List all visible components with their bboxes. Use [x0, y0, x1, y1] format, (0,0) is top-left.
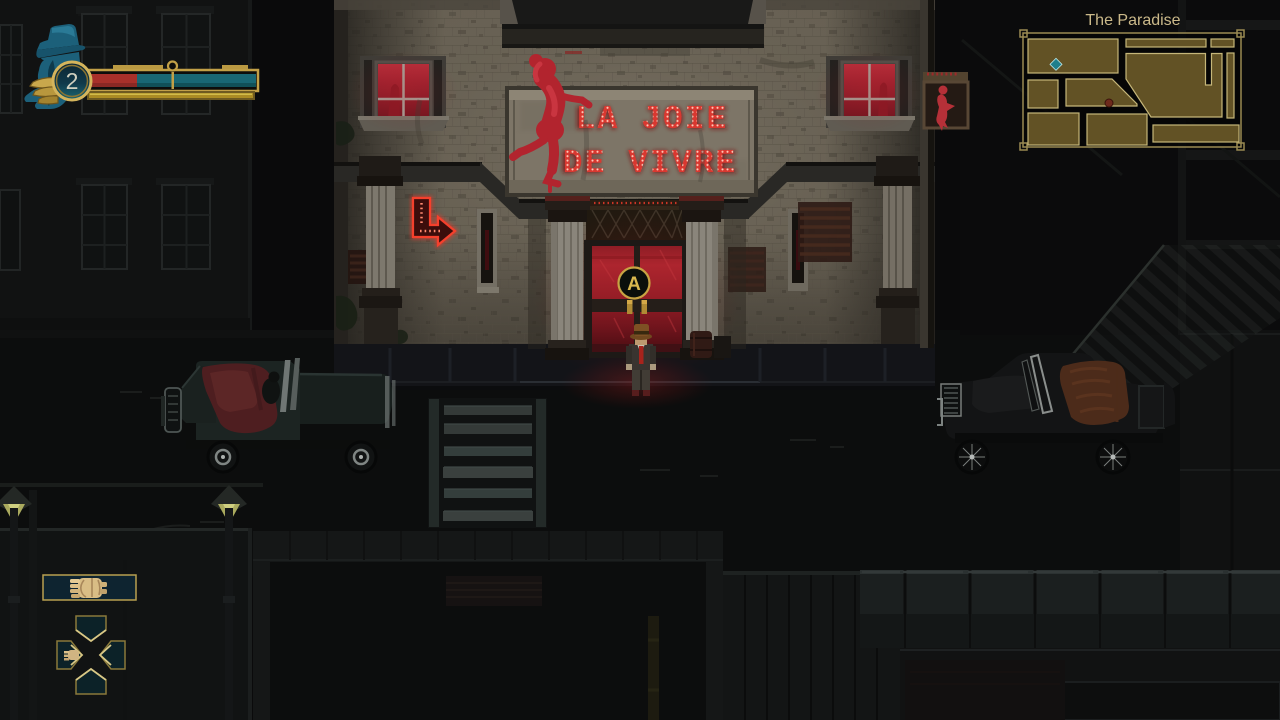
- svg-text:2: 2: [66, 68, 79, 94]
- svg-text:The Paradise: The Paradise: [1085, 12, 1180, 29]
- svg-text:A: A: [627, 274, 641, 295]
- svg-text:LA JOIE: LA JOIE: [576, 101, 729, 138]
